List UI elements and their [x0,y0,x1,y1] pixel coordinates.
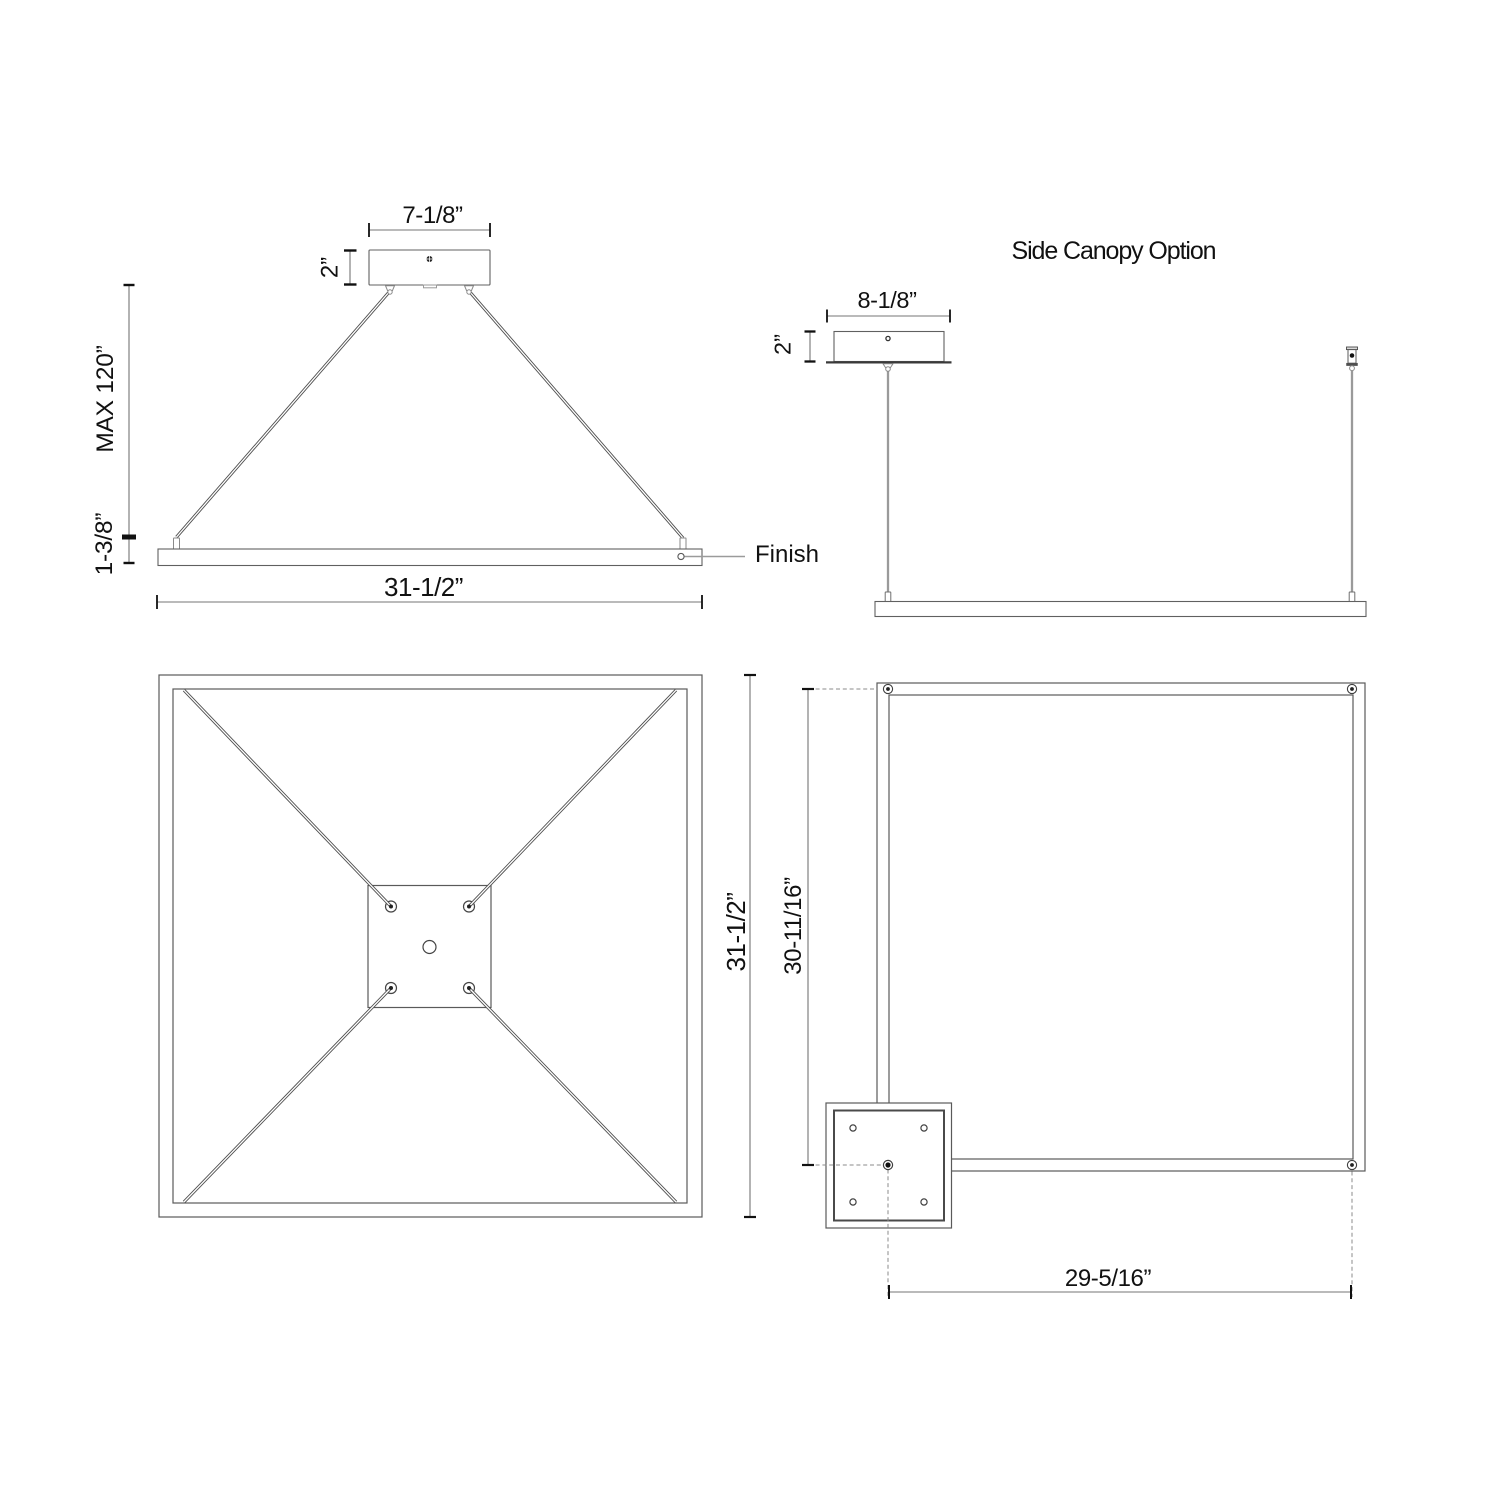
svg-text:Side Canopy Option: Side Canopy Option [1012,237,1216,265]
svg-text:2”: 2” [770,334,796,355]
svg-text:Finish: Finish [755,541,819,568]
svg-text:31-1/2”: 31-1/2” [721,893,751,972]
svg-text:2”: 2” [317,257,344,278]
svg-text:8-1/8”: 8-1/8” [858,287,917,313]
svg-text:1-3/8”: 1-3/8” [91,513,118,576]
svg-text:7-1/8”: 7-1/8” [402,202,463,229]
svg-text:29-5/16”: 29-5/16” [1065,1265,1152,1292]
svg-text:MAX 120”: MAX 120” [92,345,119,452]
svg-text:30-11/16”: 30-11/16” [780,877,807,975]
svg-text:31-1/2”: 31-1/2” [384,572,463,602]
